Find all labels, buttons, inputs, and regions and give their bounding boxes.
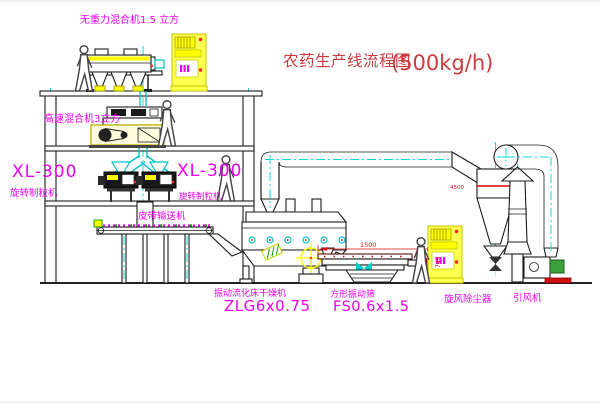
cyclone-level-dimension: 4500 <box>450 185 464 191</box>
granulator-left-model: XL-300 <box>12 162 77 182</box>
induced-draft-fan <box>524 257 571 283</box>
sieve-height-dimension: 745 <box>435 256 442 268</box>
sieve-length-dimension: 1500 <box>360 241 377 249</box>
cyclone-label: 旋风除尘器 <box>444 293 492 305</box>
belt-conveyor-label: 皮带输送机 <box>138 210 186 222</box>
gravity-mixer <box>83 49 164 106</box>
high-speed-mixer-label: 高速混合机3立方 <box>44 112 120 125</box>
granulator-mid-name: 旋转制粒机 <box>179 191 222 202</box>
granulator-left <box>98 162 138 202</box>
granulator-right <box>136 162 176 202</box>
control-cabinet-top <box>171 34 207 91</box>
cad-drawing-canvas: 无重力混合机1.5 立方 农药生产线流程图 (500kg/h) 高速混合机3立方… <box>0 0 600 403</box>
capacity-text: (500kg/h) <box>391 51 493 75</box>
belt-conveyor <box>94 220 242 283</box>
gravity-mixer-label: 无重力混合机1.5 立方 <box>80 13 179 26</box>
sieve-model-label: FS0.6x1.5 <box>333 299 410 315</box>
pesticide-line-flow-diagram: 无重力混合机1.5 立方 农药生产线流程图 (500kg/h) 高速混合机3立方… <box>0 0 600 403</box>
dryer-model-label: ZLG6x0.75 <box>224 297 311 315</box>
granulator-left-name: 旋转制粒机 <box>10 187 58 199</box>
granulator-mid-model: XL-300 <box>177 161 242 181</box>
control-cabinet-right <box>427 226 463 283</box>
fan-label: 引风机 <box>513 292 542 304</box>
